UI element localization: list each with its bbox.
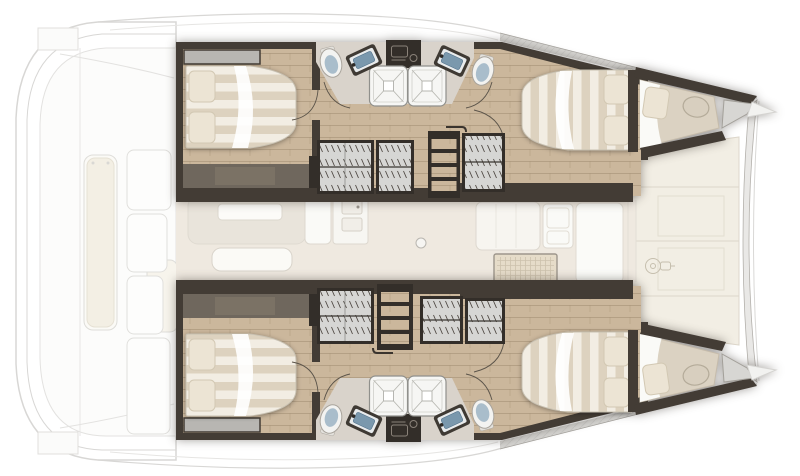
bow-tip-cap — [747, 102, 776, 117]
bulkhead — [628, 70, 638, 152]
wardrobe-locker — [317, 140, 374, 194]
shower-tray — [408, 66, 446, 106]
wardrobe-locker — [420, 296, 463, 344]
transom-step — [38, 28, 78, 50]
deck-panel — [127, 150, 171, 210]
bulkhead — [628, 330, 638, 412]
mast-post — [416, 238, 426, 248]
sideboard — [476, 202, 540, 250]
double-berth — [522, 332, 632, 412]
forward-cabinet — [543, 204, 573, 248]
nightstand — [309, 156, 317, 190]
sheer-line-bottom — [98, 448, 502, 468]
boat-floor-plan — [0, 0, 800, 476]
forepeak-berth — [634, 67, 776, 158]
shower-tray — [370, 376, 408, 416]
saloon-bench — [212, 248, 292, 271]
pillow — [642, 86, 670, 119]
pillow — [642, 362, 670, 395]
deck-panel — [127, 338, 170, 434]
forward-cabin — [522, 330, 638, 412]
forward-door — [576, 203, 623, 283]
wet-unit — [386, 414, 421, 442]
shower-tray — [408, 376, 446, 416]
wardrobe-locker — [465, 298, 505, 344]
forepeak-berth — [634, 324, 776, 415]
nightstand — [309, 292, 317, 326]
saloon-table — [218, 204, 282, 220]
catamaran-plan-svg — [0, 0, 800, 476]
toerail-line-bottom — [110, 442, 498, 460]
bow-tip-cap — [747, 365, 776, 380]
deck-panel — [127, 276, 163, 334]
sheer-line-top — [98, 14, 502, 34]
bench-cushion — [87, 158, 114, 327]
toerail-line-top — [110, 22, 498, 40]
headboard-shelf — [184, 50, 260, 64]
wardrobe-locker — [376, 140, 414, 194]
bow-crossbeam — [743, 100, 757, 382]
wet-unit — [386, 40, 421, 68]
double-berth — [186, 66, 296, 148]
cabin-sofa-cushion — [215, 297, 275, 315]
headboard-shelf — [184, 418, 260, 432]
shower-tray — [370, 66, 408, 106]
deck-panel — [127, 214, 167, 272]
galley-sink — [342, 218, 362, 231]
companionway-steps — [373, 284, 413, 353]
cabin-sofa-cushion — [215, 167, 275, 185]
wardrobe-locker — [462, 133, 505, 192]
transom-step — [38, 432, 78, 454]
bow-crossbeam-outer-line — [754, 101, 760, 381]
forward-cabin — [522, 70, 638, 152]
wardrobe-locker — [317, 288, 374, 344]
galley-faucet — [357, 206, 360, 209]
double-berth — [522, 70, 632, 150]
cockpit-bench — [84, 155, 117, 330]
double-berth — [186, 334, 296, 416]
